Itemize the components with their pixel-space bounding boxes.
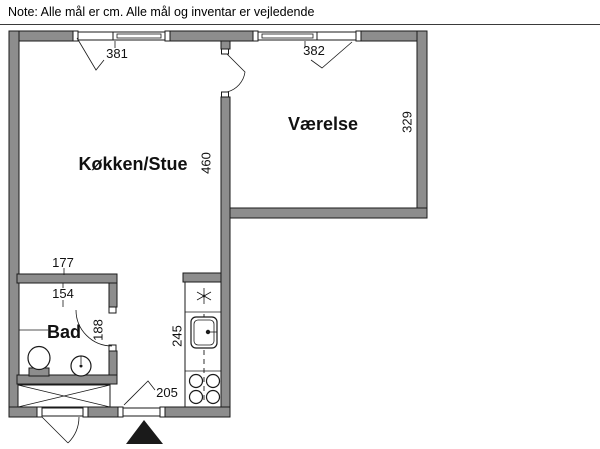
wall-bottom-right — [165, 407, 230, 417]
window-jamb — [356, 31, 361, 41]
door-jamb — [118, 407, 123, 417]
walls — [9, 31, 427, 417]
window-casement — [317, 32, 356, 40]
wall-bottom-mid — [88, 407, 118, 417]
room-label-bath: Bad — [47, 322, 81, 342]
door-jamb — [109, 307, 116, 313]
dim-window-right: 382 — [303, 43, 325, 58]
wall-bottom-left — [9, 407, 37, 417]
room-label-bedroom: Værelse — [288, 114, 358, 134]
dim-bedroom-depth: 329 — [400, 111, 415, 133]
floorplan-page: Note: Alle mål er cm. Alle mål og invent… — [0, 0, 600, 449]
wall-bedroom-bottom — [221, 208, 427, 218]
toilet-icon — [28, 347, 50, 370]
door-threshold — [123, 408, 160, 416]
door-leaf — [42, 417, 68, 443]
floorplan-drawing: Køkken/Stue Værelse Bad 381 382 177 154 … — [0, 0, 600, 449]
kitchen-fixtures — [185, 282, 221, 407]
door-jamb — [222, 49, 229, 54]
wall-bath-right-lower — [109, 351, 117, 375]
window-casement — [78, 32, 113, 40]
wall-right — [417, 31, 427, 218]
window-jamb — [165, 31, 170, 41]
door-bedroom — [222, 49, 246, 97]
window-jamb — [73, 31, 78, 41]
room-label-living: Køkken/Stue — [78, 154, 187, 174]
window-icon — [258, 32, 317, 40]
wall-interior-stub — [221, 41, 230, 49]
dim-window-left: 381 — [106, 46, 128, 61]
wall-bath-top — [17, 274, 117, 283]
door-threshold — [42, 408, 83, 416]
window-left-381 — [73, 31, 170, 41]
dim-kitchen-run: 245 — [170, 325, 185, 347]
sink-basin-icon — [191, 317, 217, 348]
wall-top-mid — [170, 31, 253, 41]
door-jamb — [160, 407, 165, 417]
wall-interior — [221, 97, 230, 407]
door-balcony — [37, 407, 88, 443]
wall-left — [9, 31, 19, 417]
dim-bath-inner: 154 — [52, 286, 74, 301]
dim-entrance: 205 — [156, 385, 178, 400]
door-jamb — [37, 407, 42, 417]
dim-living-depth: 460 — [199, 152, 214, 174]
leader-205 — [124, 381, 155, 405]
door-entrance — [118, 407, 165, 444]
wall-kitchen-stub — [183, 273, 221, 282]
door-jamb — [222, 92, 229, 97]
door-swing-icon — [227, 54, 245, 92]
dim-bath-outer: 177 — [52, 255, 74, 270]
window-icon — [113, 32, 165, 40]
door-jamb — [83, 407, 88, 417]
washbasin-drain — [80, 365, 83, 368]
four-burners-icon — [185, 371, 221, 404]
window-jamb — [253, 31, 258, 41]
bathroom-fixtures — [28, 347, 91, 377]
entrance-arrow-icon — [126, 420, 163, 444]
wardrobe-icon — [18, 385, 110, 407]
window-right-382 — [253, 31, 361, 41]
door-swing-icon — [68, 417, 79, 443]
dim-bath-depth: 188 — [91, 319, 106, 341]
wall-bath-right-upper — [109, 283, 117, 307]
fridge-snowflake-icon — [197, 288, 211, 304]
leader-381 — [77, 38, 104, 70]
